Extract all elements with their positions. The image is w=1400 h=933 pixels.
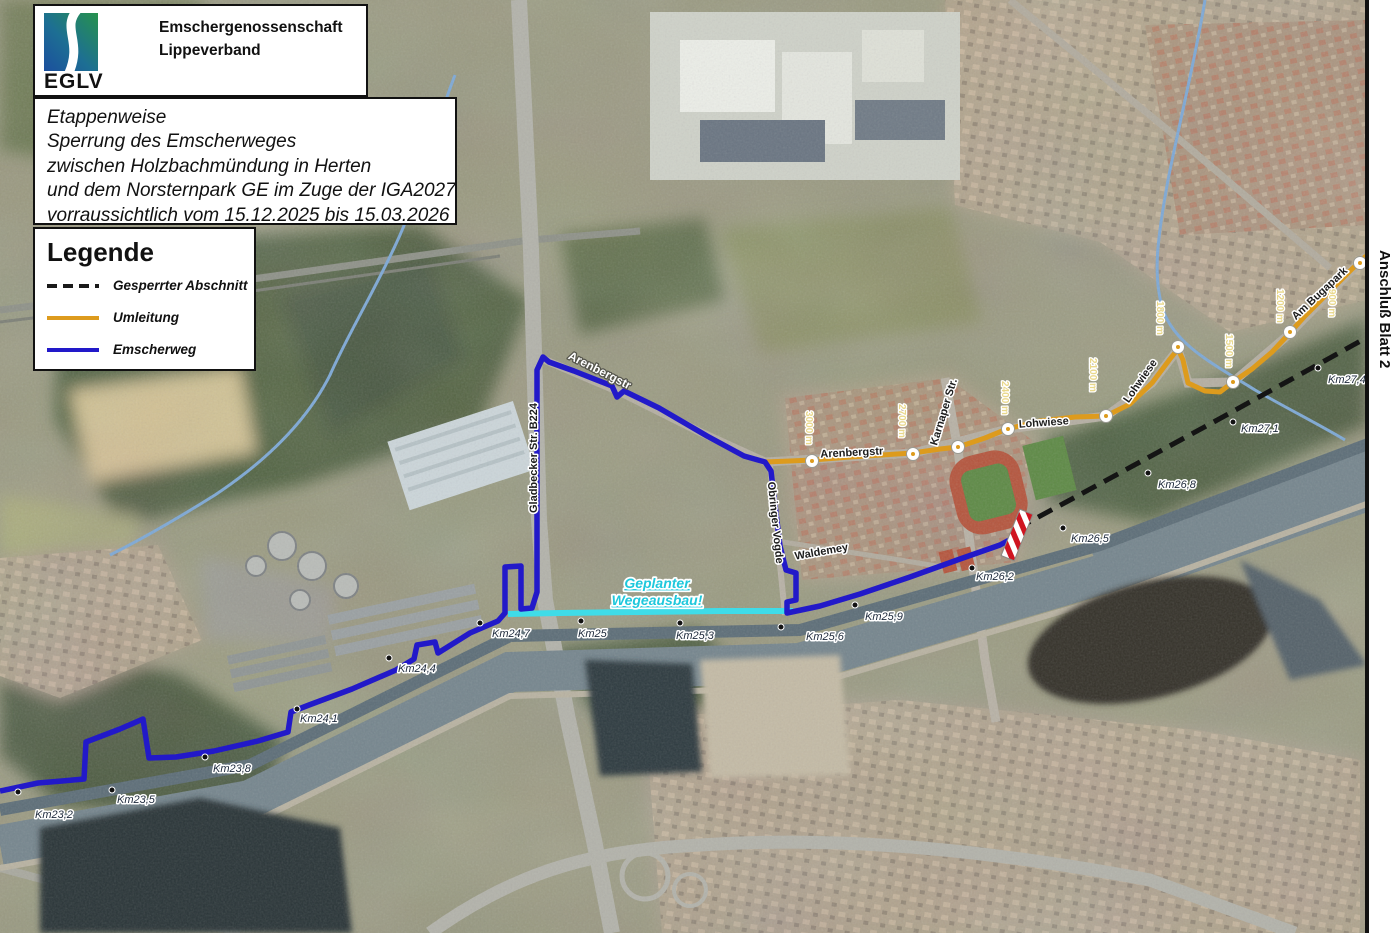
umleitung-waypoint-dot	[1176, 345, 1180, 349]
org-name-line1: Emschergenossenschaft	[159, 16, 343, 39]
umleitung-waypoint-dot	[956, 445, 960, 449]
distance-label: 3000 m	[803, 411, 814, 445]
km-marker-label: Km26,5	[1071, 533, 1110, 545]
km-marker-dot	[852, 602, 858, 608]
umleitung-waypoint-dot	[1006, 427, 1010, 431]
km-marker-dot	[109, 787, 115, 793]
km-marker-dot	[969, 565, 975, 571]
km-marker-label: Km27,1	[1241, 423, 1279, 435]
umleitung-waypoint-dot	[1358, 261, 1362, 265]
legend-heading: Legende	[47, 237, 242, 268]
km-marker-dot	[778, 624, 784, 630]
km-marker-dot	[1230, 419, 1236, 425]
km-marker-label: Km23,5	[117, 794, 156, 806]
street-label: Gladbecker Str. B224	[528, 402, 540, 513]
legend-items: Gesperrter AbschnittUmleitungEmscherweg	[47, 278, 242, 357]
km-marker-dot	[1315, 365, 1321, 371]
km-marker-label: Km25,3	[676, 630, 715, 642]
legend-box: Legende Gesperrter AbschnittUmleitungEms…	[33, 227, 256, 371]
sheet-margin: Anschluß Blatt 2	[1367, 0, 1400, 933]
km-marker-dot	[1060, 525, 1066, 531]
wegeausbau-label-line2: Wegeausbau!	[612, 592, 703, 608]
km-marker-label: Km26,8	[1158, 479, 1197, 491]
title-line: zwischen Holzbachmündung in Herten	[47, 155, 443, 179]
km-marker-label: Km23,2	[35, 809, 73, 821]
km-marker-label: Km26,2	[976, 571, 1014, 583]
distance-label: 1500 m	[1223, 334, 1234, 368]
umleitung-waypoint-dot	[810, 459, 814, 463]
eglv-logo-text: EGLV	[44, 70, 104, 94]
distance-label: 1200 m	[1274, 289, 1285, 323]
km-marker-label: Km27,4	[1328, 374, 1366, 386]
km-marker-dot	[15, 789, 21, 795]
legend-item-label: Umleitung	[113, 310, 179, 325]
km-marker-dot	[477, 620, 483, 626]
title-line: und dem Norsternpark GE im Zuge der IGA2…	[47, 179, 443, 203]
eglv-logo-icon	[44, 13, 98, 71]
km-marker-dot	[202, 754, 208, 760]
km-marker-dot	[294, 706, 300, 712]
title-box: EtappenweiseSperrung des Emscherwegeszwi…	[33, 97, 457, 225]
title-line: vorraussichtlich vom 15.12.2025 bis 15.0…	[47, 204, 443, 228]
org-name-line2: Lippeverband	[159, 39, 343, 62]
km-marker-label: Km23,8	[213, 763, 252, 775]
km-marker-label: Km25,6	[806, 631, 845, 643]
km-marker-dot	[1145, 470, 1151, 476]
legend-item: Gesperrter Abschnitt	[47, 278, 242, 293]
km-marker-dot	[677, 620, 683, 626]
wegeausbau-route	[508, 611, 793, 614]
distance-label: 900 m	[1326, 289, 1337, 317]
logo-box: EGLV Emschergenossenschaft Lippeverband	[33, 4, 368, 97]
title-line: Sperrung des Emscherweges	[47, 130, 443, 154]
km-marker-label: Km24,7	[492, 628, 531, 640]
km-marker-dot	[386, 655, 392, 661]
umleitung-waypoint-dot	[1231, 380, 1235, 384]
distance-label: 1800 m	[1154, 301, 1165, 335]
umleitung-waypoint-dot	[911, 452, 915, 456]
km-marker-label: Km24,1	[300, 713, 338, 725]
distance-label: 2400 m	[999, 381, 1010, 415]
solid-line-swatch	[47, 316, 99, 320]
legend-item-label: Emscherweg	[113, 342, 196, 357]
umleitung-waypoint-dot	[1288, 330, 1292, 334]
legend-item: Emscherweg	[47, 342, 242, 357]
km-marker-label: Km25	[578, 628, 608, 640]
legend-item: Umleitung	[47, 310, 242, 325]
solid-line-swatch	[47, 348, 99, 352]
sheet-link-label: Anschluß Blatt 2	[1376, 250, 1393, 368]
km-marker-dot	[578, 618, 584, 624]
dashed-line-swatch	[47, 284, 99, 288]
org-name: Emschergenossenschaft Lippeverband	[159, 16, 343, 62]
distance-label: 2700 m	[896, 404, 907, 438]
title-line: Etappenweise	[47, 106, 443, 130]
umleitung-waypoint-dot	[1104, 414, 1108, 418]
wegeausbau-label: Geplanter Wegeausbau!	[612, 575, 703, 608]
km-marker-label: Km24,4	[398, 663, 436, 675]
km-marker-label: Km25,9	[865, 611, 903, 623]
distance-label: 2100 m	[1087, 358, 1098, 392]
legend-item-label: Gesperrter Abschnitt	[113, 278, 248, 293]
wegeausbau-label-line1: Geplanter	[624, 575, 691, 591]
